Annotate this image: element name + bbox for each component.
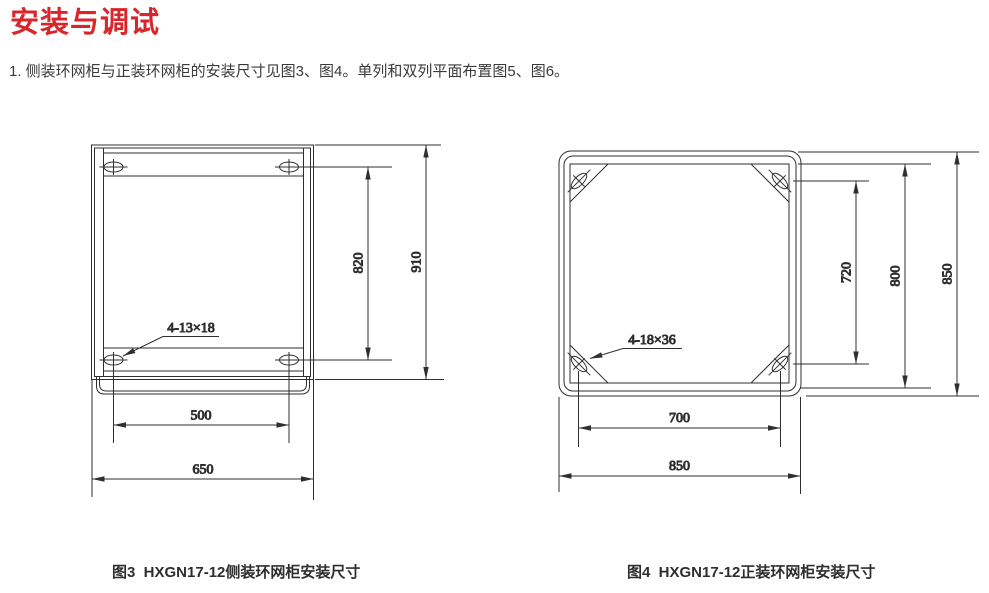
fig4-extension-lines (559, 152, 979, 494)
fig3-dim-overall-width: 650 (92, 463, 314, 480)
fig4-caption: 图4 HXGN17-12正装环网柜安装尺寸 (627, 561, 875, 582)
fig4-dim-vertical-hole-spacing: 720 (840, 181, 857, 364)
fig4-dim-720-value: 720 (840, 262, 855, 283)
fig3-dim-500-value: 500 (191, 409, 212, 424)
fig4-dim-800-value: 800 (889, 266, 904, 287)
fig3-mounting-slot-top-right (275, 159, 303, 175)
fig4-dim-850-height-value: 850 (941, 264, 956, 285)
fig3-dim-910-value: 910 (410, 252, 425, 273)
fig4-slot-callout: 4-18×36 (590, 333, 682, 359)
fig3-extension-lines (92, 145, 444, 500)
fig3-mounting-slot-bottom-right (275, 352, 303, 368)
fig3-dim-overall-height: 910 (410, 145, 427, 380)
fig3-dim-vertical-hole-spacing: 820 (352, 167, 369, 360)
fig4-dim-overall-height: 850 (941, 152, 958, 396)
fig4-drawing: 720 800 850 700 850 4-18×36 (559, 151, 979, 494)
fig4-dim-700-value: 700 (669, 411, 690, 426)
fig4-dim-horizontal-hole-spacing: 700 (579, 411, 781, 428)
fig3-drawing: 820 910 500 650 4-13×18 (92, 145, 445, 500)
fig3-slot-callout: 4-13×18 (123, 321, 219, 356)
fig3-caption: 图3 HXGN17-12侧装环网柜安装尺寸 (112, 561, 360, 582)
fig4-dim-overall-width: 850 (559, 459, 801, 476)
fig3-slot-label: 4-13×18 (167, 321, 215, 336)
fig3-dim-820-value: 820 (352, 253, 367, 274)
fig4-cabinet-outline (559, 151, 801, 396)
fig4-dim-850-width-value: 850 (669, 459, 690, 474)
fig3-cabinet-outline (92, 145, 314, 394)
fig4-slot-label: 4-18×36 (628, 333, 676, 348)
fig4-dim-frame-height: 800 (889, 164, 906, 388)
fig3-dim-horizontal-hole-spacing: 500 (114, 409, 290, 426)
page: { "colors": { "accent_red": "#d7262c", "… (0, 0, 989, 593)
installation-drawings: 820 910 500 650 4-13×18 (0, 0, 989, 593)
fig3-dim-650-value: 650 (193, 463, 214, 478)
